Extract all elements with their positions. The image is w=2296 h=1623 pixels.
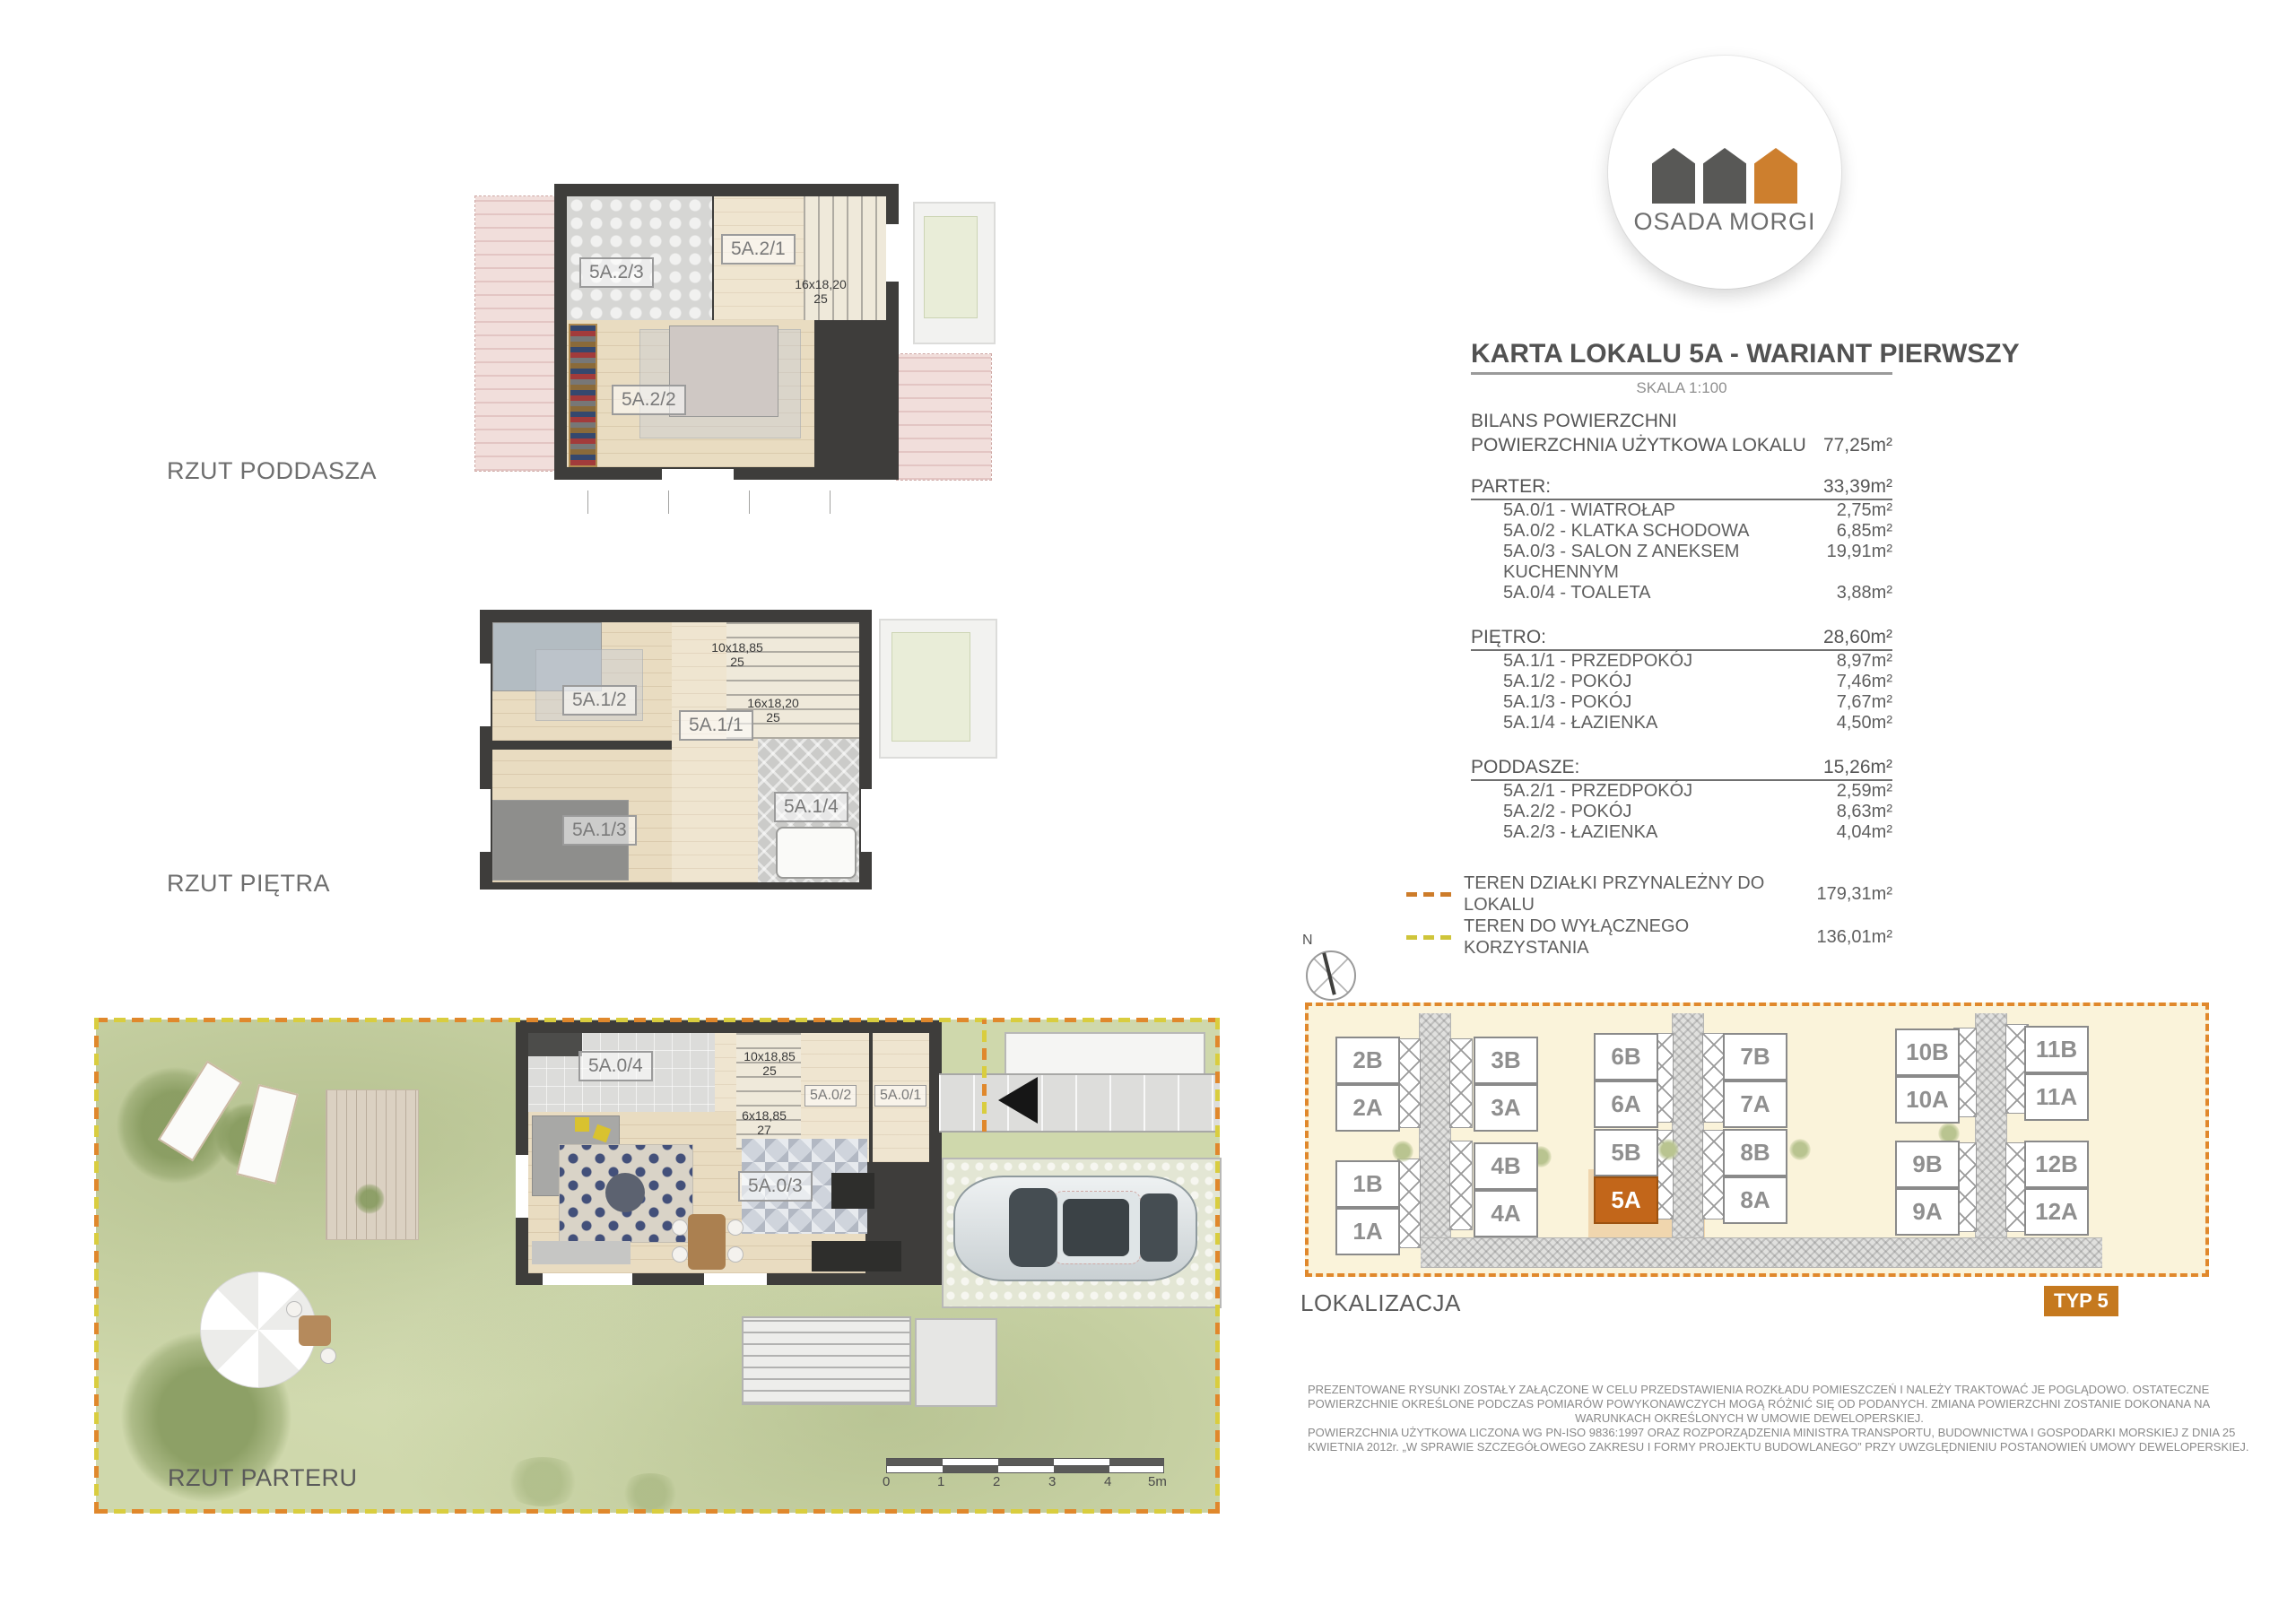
chair: [727, 1246, 744, 1263]
sitemap-unit-1a[interactable]: 1A: [1335, 1208, 1400, 1255]
room-label: 5A.2/3: [579, 257, 654, 288]
sitemap-unit-5b[interactable]: 5B: [1594, 1129, 1658, 1176]
dim-tick: [830, 490, 831, 514]
sitemap-unit-10a[interactable]: 10A: [1895, 1076, 1960, 1124]
scale-tick: 0: [883, 1474, 890, 1489]
tree-icon: [1392, 1141, 1413, 1162]
car-windshield: [1009, 1188, 1057, 1267]
sitemap-unit-12b[interactable]: 12B: [2024, 1141, 2089, 1188]
scale-tick: 5m: [1148, 1474, 1167, 1489]
row-label: 5A.1/4 - ŁAZIENKA: [1503, 713, 1657, 733]
terrace-green: [924, 216, 978, 318]
disclaimer-line: POWIERZCHNIE OKREŚLONE PODCZAS POMIARÓW …: [1308, 1397, 2191, 1411]
disclaimer-line: PREZENTOWANE RYSUNKI ZOSTAŁY ZAŁĄCZONE W…: [1308, 1383, 2191, 1397]
table-row: 5A.0/4 - TOALETA3,88m²: [1471, 583, 1892, 603]
room-label: 5A.2/2: [612, 385, 686, 415]
parcel-boundary: [94, 1018, 99, 1514]
scale-tick: 3: [1048, 1474, 1056, 1489]
lokalizacja-label: LOKALIZACJA: [1300, 1289, 1461, 1317]
disclaimer: PREZENTOWANE RYSUNKI ZOSTAŁY ZAŁĄCZONE W…: [1308, 1383, 2191, 1454]
cooktop: [831, 1173, 874, 1209]
wood-deck: [326, 1089, 419, 1240]
scale-note: SKALA 1:100: [1471, 379, 1892, 397]
window: [886, 224, 899, 282]
table-row: 5A.2/3 - ŁAZIENKA4,04m²: [1471, 822, 1892, 843]
orange-dash-icon: [1406, 892, 1451, 897]
dim-tick: [587, 490, 588, 514]
car-rear-window: [1140, 1193, 1178, 1262]
row-label: 5A.2/2 - POKÓJ: [1503, 802, 1631, 822]
row-label: 5A.0/3 - SALON Z ANEKSEM KUCHENNYM: [1503, 542, 1827, 583]
sitemap-unit-9a[interactable]: 9A: [1895, 1188, 1960, 1236]
roof-hatch: [897, 354, 991, 480]
car-sunroof: [1063, 1199, 1129, 1256]
stair-note: 16x18,20 25: [780, 277, 861, 306]
terrace: [879, 619, 997, 759]
compass-north-label: N: [1302, 933, 1313, 949]
parcel-boundary: [96, 1509, 1220, 1514]
label-rzut-pietra: RZUT PIĘTRA: [167, 870, 330, 898]
sitemap-unit-4b[interactable]: 4B: [1474, 1142, 1538, 1190]
stair-note: 10x18,85 25: [697, 640, 778, 669]
room-label: 5A.0/2: [804, 1085, 857, 1107]
table-row: 5A.2/1 - PRZEDPOKÓJ2,59m²: [1471, 781, 1892, 802]
garden-table: [299, 1315, 331, 1346]
room-label: 5A.1/3: [562, 815, 637, 846]
sitemap-unit-11a[interactable]: 11A: [2024, 1073, 2089, 1121]
label-rzut-parteru: RZUT PARTERU: [168, 1464, 358, 1492]
stair-note: 6x18,85 27: [724, 1108, 804, 1137]
row-value: 2,59m²: [1837, 781, 1892, 802]
sitemap-unit-8a[interactable]: 8A: [1723, 1176, 1787, 1224]
table-row: 5A.0/2 - KLATKA SCHODOWA6,85m²: [1471, 521, 1892, 542]
tree: [502, 1457, 583, 1506]
window: [662, 469, 734, 480]
bathtub: [776, 827, 857, 879]
legend-row: TEREN DO WYŁĄCZNEGO KORZYSTANIA 136,01m²: [1406, 916, 1892, 959]
row-label: 5A.0/2 - KLATKA SCHODOWA: [1503, 521, 1750, 542]
dim-tick: [668, 490, 669, 514]
chair: [727, 1219, 744, 1236]
sidewalk: [939, 1073, 1220, 1133]
typ-5-badge: TYP 5: [2044, 1286, 2118, 1316]
logo-houses-icon: [1652, 148, 1797, 204]
garden-chair: [320, 1348, 336, 1364]
section-label: PARTER:: [1471, 476, 1551, 498]
table-row: 5A.1/3 - POKÓJ7,67m²: [1471, 692, 1892, 713]
scale-tick: 4: [1104, 1474, 1111, 1489]
sitemap-unit-7b[interactable]: 7B: [1723, 1033, 1787, 1081]
garage-row: [1397, 1159, 1421, 1248]
logo-name: OSADA MORGI: [1608, 208, 1841, 236]
car: [953, 1176, 1197, 1281]
compass: N: [1300, 933, 1358, 1008]
parter-siteplan: 5A.0/4 5A.0/3 5A.0/2 5A.0/1 10x18,85 25 …: [94, 1018, 1224, 1520]
info-panel: KARTA LOKALU 5A - WARIANT PIERWSZY SKALA…: [1471, 339, 1892, 843]
pietro-floorplan: 5A.1/2 5A.1/1 5A.1/3 5A.1/4 10x18,85 25 …: [475, 605, 996, 919]
scale-tick: 2: [993, 1474, 1000, 1489]
room-label: 5A.0/3: [738, 1171, 813, 1202]
lokal-card-page: OSADA MORGI KARTA LOKALU 5A - WARIANT PI…: [0, 0, 2296, 1623]
bilans-heading: BILANS POWIERZCHNI: [1471, 411, 1892, 432]
section-value: 28,60m²: [1823, 627, 1892, 648]
section-value: 15,26m²: [1823, 757, 1892, 778]
site-road: [1419, 1013, 1451, 1237]
row-label: 5A.2/3 - ŁAZIENKA: [1503, 822, 1657, 843]
sitemap-unit-6b[interactable]: 6B: [1594, 1033, 1658, 1081]
legend-value: 179,31m²: [1817, 883, 1893, 905]
stair-note: 10x18,85 25: [729, 1049, 810, 1078]
poddasze-floorplan: 5A.2/3 5A.2/1 5A.2/2 16x18,20 25: [475, 184, 996, 538]
yellow-dash-icon: [1406, 935, 1451, 940]
chair: [672, 1246, 688, 1263]
garden-chair: [286, 1301, 302, 1317]
garage-row: [1449, 1038, 1473, 1128]
entrance-arrow-icon: [998, 1077, 1038, 1124]
row-value: 4,04m²: [1837, 822, 1892, 843]
section-pietro: PIĘTRO: 28,60m² 5A.1/1 - PRZEDPOKÓJ8,97m…: [1471, 627, 1892, 733]
pillow: [575, 1117, 589, 1132]
site-road: [1421, 1237, 2102, 1268]
sitemap-unit-10b[interactable]: 10B: [1895, 1028, 1960, 1076]
sitemap-unit-5a-highlighted[interactable]: 5A: [1594, 1176, 1658, 1224]
section-label: PIĘTRO:: [1471, 627, 1546, 648]
sitemap-unit-9b[interactable]: 9B: [1895, 1141, 1960, 1188]
row-label: 5A.0/1 - WIATROŁAP: [1503, 500, 1675, 521]
house-icon-orange: [1754, 148, 1797, 204]
counter: [528, 1033, 582, 1056]
section-parter: PARTER: 33,39m² 5A.0/1 - WIATROŁAP2,75m²…: [1471, 476, 1892, 603]
table-row: 5A.0/3 - SALON Z ANEKSEM KUCHENNYM19,91m…: [1471, 542, 1892, 583]
row-label: 5A.2/1 - PRZEDPOKÓJ: [1503, 781, 1692, 802]
sitemap-unit-2a[interactable]: 2A: [1335, 1084, 1400, 1132]
room-label: 5A.0/1: [874, 1085, 926, 1107]
disclaimer-line: POWIERZCHNIA UŻYTKOWA LICZONA WG PN-ISO …: [1308, 1426, 2191, 1440]
building-outline: 5A.0/4 5A.0/3 5A.0/2 5A.0/1 10x18,85 25 …: [516, 1020, 942, 1285]
garage-row: [1397, 1038, 1421, 1128]
building-outline: 5A.2/3 5A.2/1 5A.2/2 16x18,20 25: [554, 184, 899, 480]
table-row: 5A.1/1 - PRZEDPOKÓJ8,97m²: [1471, 651, 1892, 672]
row-value: 7,67m²: [1837, 692, 1892, 713]
room-label: 5A.1/2: [562, 685, 637, 716]
room-label: 5A.2/1: [721, 234, 796, 265]
window: [516, 1155, 528, 1218]
room-label: 5A.0/4: [578, 1051, 653, 1081]
location-map: 2B 2A 1B 1A 3B 3A 4B 4A 6B 6A 5B 5A 7B 7…: [1305, 1002, 2209, 1277]
row-label: 5A.1/1 - PRZEDPOKÓJ: [1503, 651, 1692, 672]
section-value: 33,39m²: [1823, 476, 1892, 498]
row-value: 19,91m²: [1827, 542, 1892, 562]
house-icon: [1652, 148, 1695, 204]
legend-row: TEREN DZIAŁKI PRZYNALEŻNY DO LOKALU 179,…: [1406, 872, 1892, 916]
page-title: KARTA LOKALU 5A - WARIANT PIERWSZY: [1471, 339, 1892, 369]
label-rzut-poddasza: RZUT PODDASZA: [167, 457, 377, 485]
table-row: 5A.1/2 - POKÓJ7,46m²: [1471, 672, 1892, 692]
dim-tick: [749, 490, 750, 514]
garage-row: [1449, 1141, 1473, 1230]
parcel-boundary: [1215, 1018, 1220, 1514]
roof-hatch: [475, 196, 556, 471]
scale-bar-row: [886, 1458, 1164, 1465]
usage-boundary: [982, 1020, 987, 1132]
building-outline: 5A.1/2 5A.1/1 5A.1/3 5A.1/4 10x18,85 25 …: [480, 610, 872, 890]
parcel-boundary: [96, 1018, 1220, 1022]
sitemap-unit-11b[interactable]: 11B: [2024, 1026, 2089, 1073]
total-label: POWIERZCHNIA UŻYTKOWA LOKALU: [1471, 435, 1806, 456]
table-row: 5A.0/1 - WIATROŁAP2,75m²: [1471, 500, 1892, 521]
outdoor-steps: [742, 1316, 911, 1405]
legend-label: TEREN DO WYŁĄCZNEGO KORZYSTANIA: [1464, 916, 1805, 959]
coffee-table: [605, 1173, 645, 1212]
sitemap-unit-6a[interactable]: 6A: [1594, 1081, 1658, 1128]
table-row: 5A.2/2 - POKÓJ8,63m²: [1471, 802, 1892, 822]
window: [480, 664, 491, 726]
neighbor-patio: [915, 1318, 997, 1407]
sitemap-unit-7a[interactable]: 7A: [1723, 1081, 1787, 1128]
row-value: 8,97m²: [1837, 651, 1892, 672]
scale-bar: 0 1 2 3 4 5m: [886, 1458, 1164, 1473]
row-value: 4,50m²: [1837, 713, 1892, 733]
window: [861, 789, 872, 852]
section-label: PODDASZE:: [1471, 757, 1579, 778]
row-value: 7,46m²: [1837, 672, 1892, 692]
kitchen-cabinets: [812, 1241, 901, 1271]
scale-bar-row: [886, 1465, 1164, 1473]
stair-note: 16x18,20 25: [733, 696, 813, 725]
terrain-legend: TEREN DZIAŁKI PRZYNALEŻNY DO LOKALU 179,…: [1406, 872, 1892, 959]
deck-plant: [354, 1184, 385, 1214]
terrace-green: [891, 632, 970, 742]
row-label: 5A.0/4 - TOALETA: [1503, 583, 1651, 603]
window: [543, 1273, 632, 1285]
terrace: [913, 202, 996, 344]
tree: [619, 1473, 682, 1514]
table-row: 5A.1/4 - ŁAZIENKA4,50m²: [1471, 713, 1892, 733]
sitemap-unit-3a[interactable]: 3A: [1474, 1084, 1538, 1132]
tv-unit: [532, 1241, 631, 1264]
sitemap-unit-12a[interactable]: 12A: [2024, 1188, 2089, 1236]
osada-morgi-logo: OSADA MORGI: [1608, 56, 1841, 289]
window: [480, 789, 491, 852]
sitemap-unit-1b[interactable]: 1B: [1335, 1160, 1400, 1208]
sitemap-unit-2b[interactable]: 2B: [1335, 1037, 1400, 1084]
tree-icon: [1789, 1139, 1811, 1160]
row-label: 5A.1/3 - POKÓJ: [1503, 692, 1631, 713]
sitemap-unit-8b[interactable]: 8B: [1723, 1129, 1787, 1176]
tree-icon: [1657, 1139, 1679, 1160]
legend-label: TEREN DZIAŁKI PRZYNALEŻNY DO LOKALU: [1464, 872, 1805, 916]
row-value: 8,63m²: [1837, 802, 1892, 822]
section-poddasze: PODDASZE: 15,26m² 5A.2/1 - PRZEDPOKÓJ2,5…: [1471, 757, 1892, 843]
wardrobe: [569, 324, 597, 467]
row-value: 2,75m²: [1837, 500, 1892, 521]
legend-value: 136,01m²: [1817, 926, 1893, 948]
row-value: 6,85m²: [1837, 521, 1892, 542]
title-rule: [1471, 372, 1892, 375]
sitemap-unit-3b[interactable]: 3B: [1474, 1037, 1538, 1084]
site-road: [1672, 1013, 1704, 1237]
total-row: POWIERZCHNIA UŻYTKOWA LOKALU 77,25m²: [1471, 435, 1892, 456]
room-label: 5A.1/4: [774, 792, 848, 822]
scale-tick: 1: [937, 1474, 944, 1489]
house-icon: [1703, 148, 1746, 204]
total-value: 77,25m²: [1823, 435, 1892, 456]
site-road: [1975, 1013, 2007, 1237]
row-value: 3,88m²: [1837, 583, 1892, 603]
disclaimer-line: KWIETNIA 2012r. „W SPRAWIE SZCZEGÓŁOWEGO…: [1308, 1440, 2191, 1454]
window: [704, 1273, 767, 1285]
row-label: 5A.1/2 - POKÓJ: [1503, 672, 1631, 692]
dining-table: [688, 1214, 726, 1270]
disclaimer-line: WARUNKACH OKREŚLONYCH W UMOWIE DEWELOPER…: [1308, 1411, 2191, 1426]
chair: [672, 1219, 688, 1236]
sitemap-unit-4a[interactable]: 4A: [1474, 1190, 1538, 1237]
paved-slab: [1004, 1032, 1205, 1075]
